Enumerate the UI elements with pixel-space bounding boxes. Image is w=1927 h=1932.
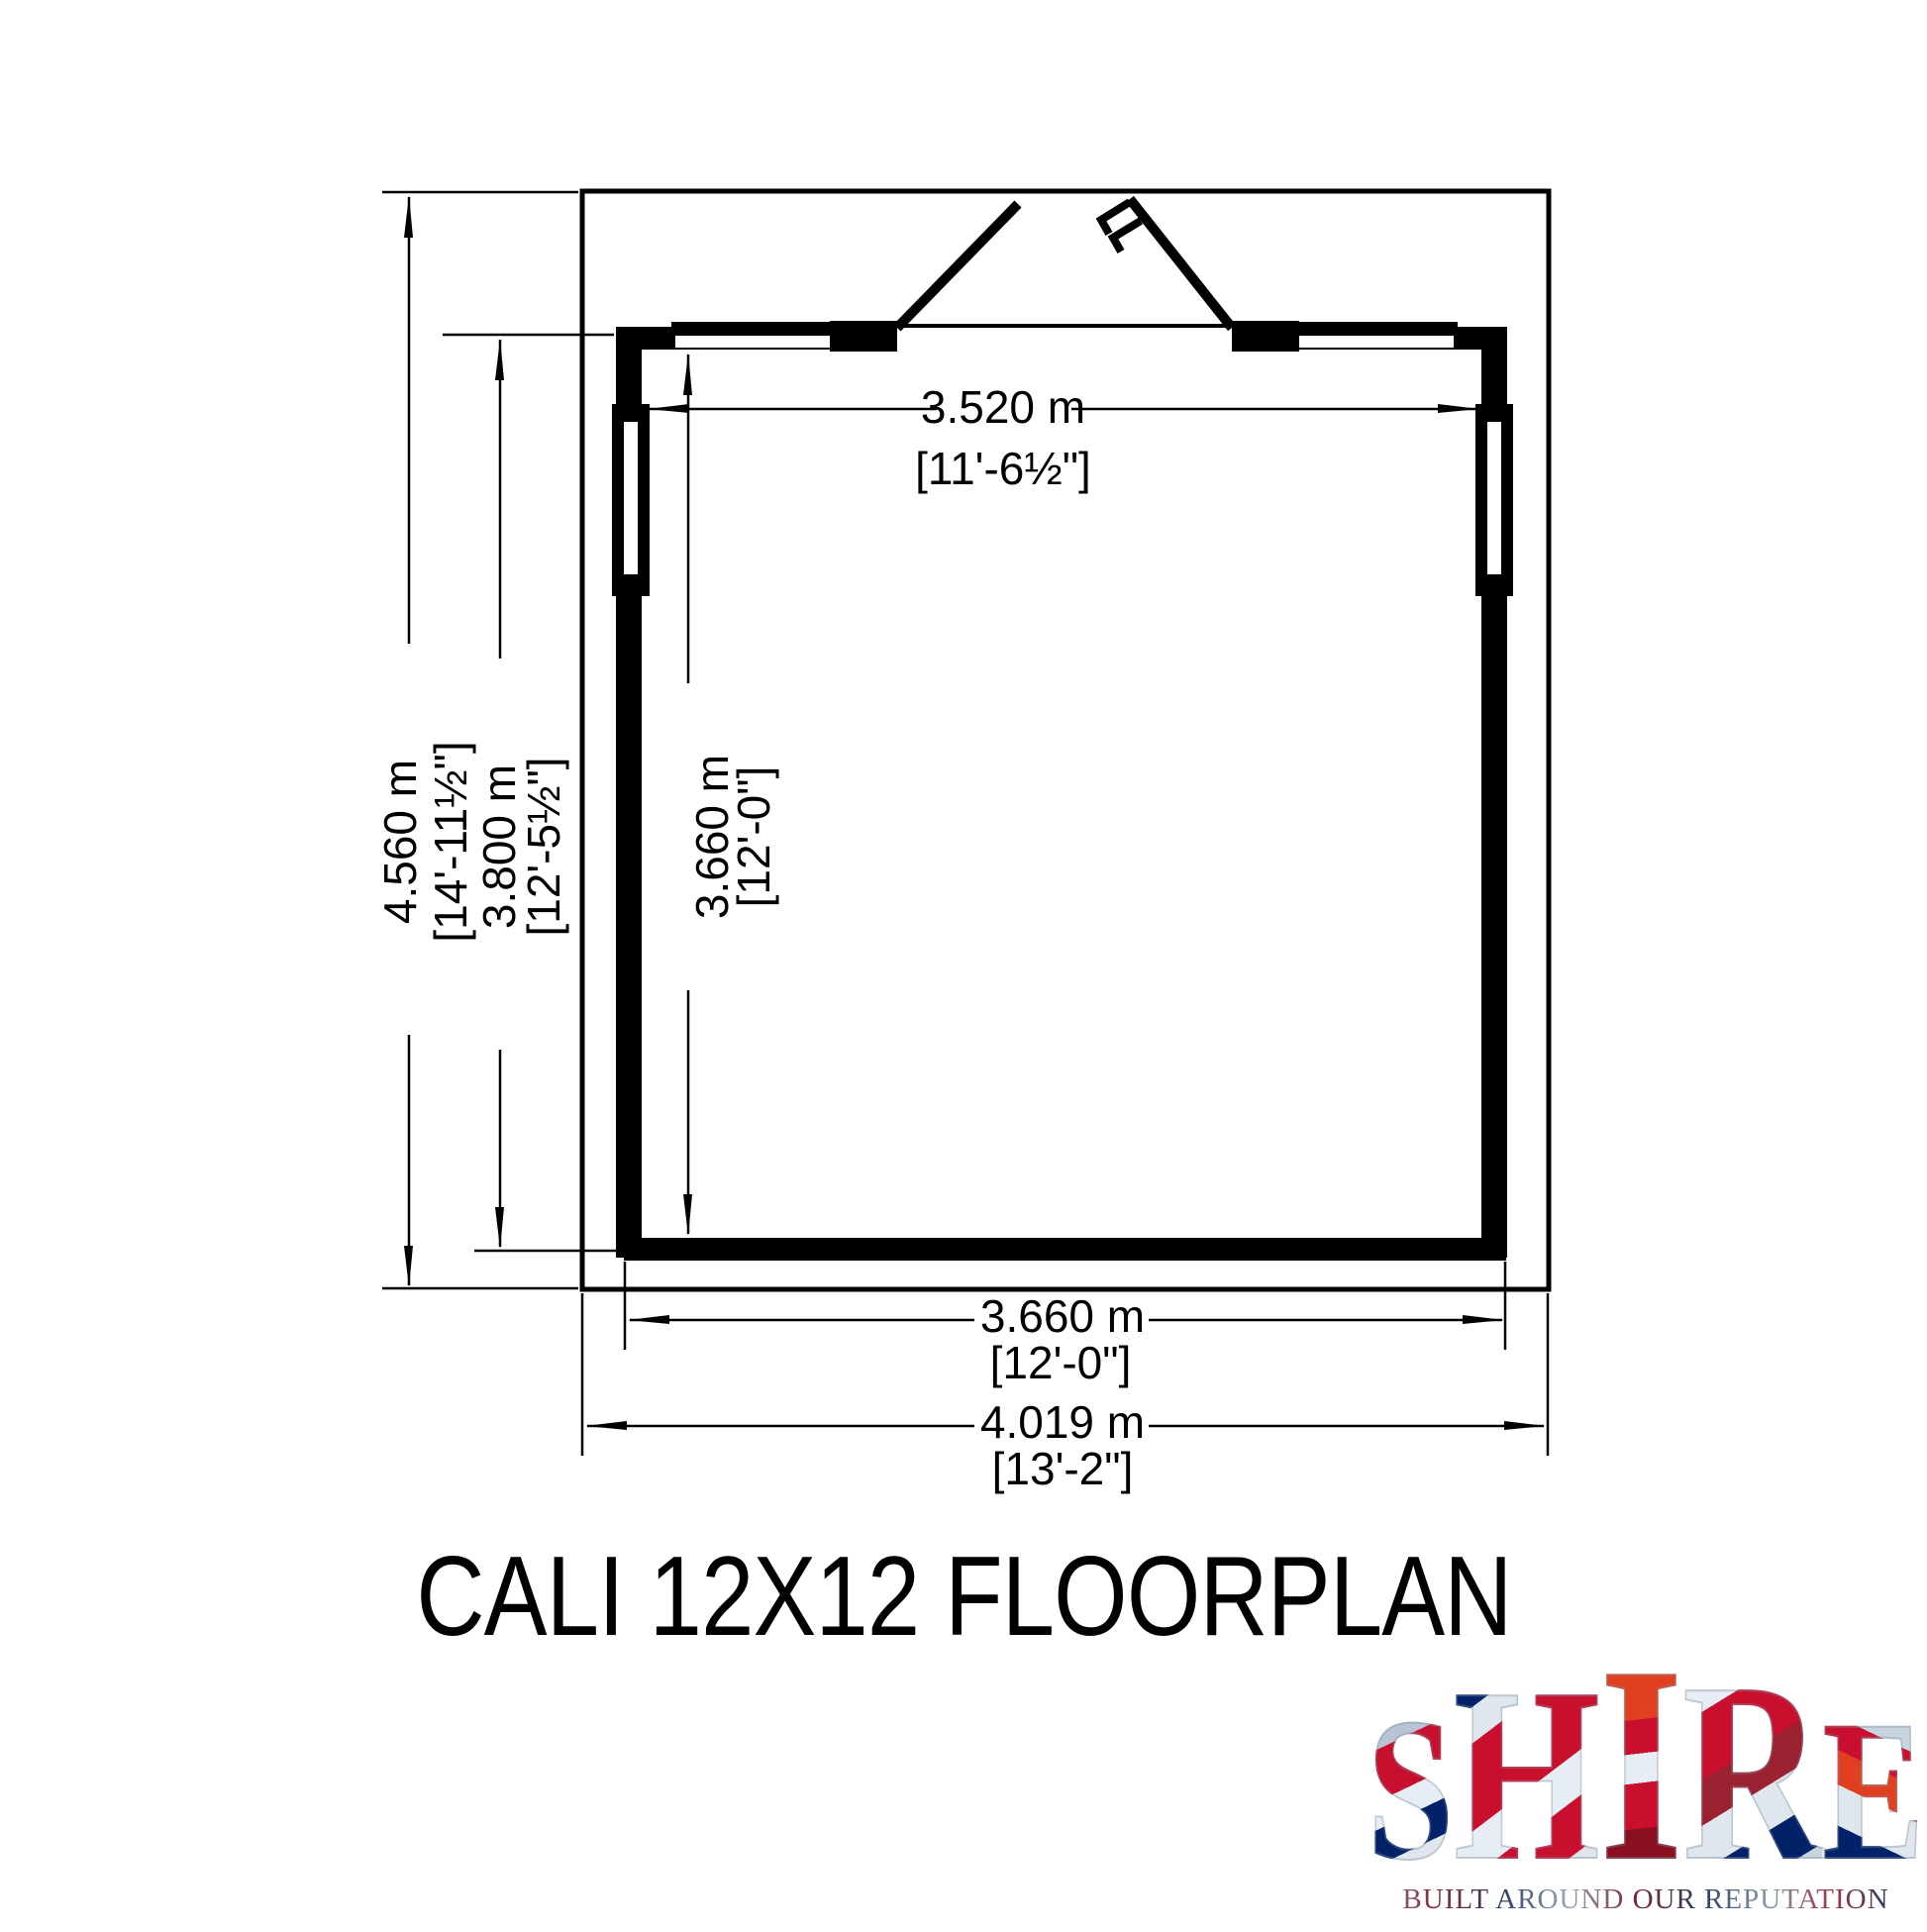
dim-label: [12'-0"]: [990, 1337, 1132, 1388]
logo-letter: S: [1368, 1710, 1454, 1870]
left-side-window-glass: [624, 422, 638, 574]
door-jamb-right: [1232, 321, 1299, 352]
arrow-left-icon: [628, 1315, 669, 1324]
dim-label: 4.019 m: [980, 1396, 1145, 1448]
arrow-down-icon: [683, 1194, 692, 1236]
arrow-right-icon: [1463, 1315, 1504, 1324]
arrow-up-icon: [404, 195, 413, 238]
dim-label: [13'-2"]: [992, 1443, 1134, 1494]
front-right-window-frame: [1295, 322, 1458, 332]
roof-overhang-outline: [582, 191, 1549, 1289]
logo-letter: H: [1454, 1678, 1600, 1872]
dim-label: [14'-11½"]: [425, 741, 476, 942]
arrow-up-icon: [495, 339, 504, 380]
door-leaf-left: [897, 204, 1018, 328]
page: { "title": "CALI 12X12 FLOORPLAN", "dime…: [0, 0, 1927, 1927]
page-title-text: CALI 12X12 FLOORPLAN: [416, 1541, 1511, 1654]
door-threshold-line: [897, 324, 1232, 328]
front-left-window-frame: [671, 322, 834, 332]
arrow-down-icon: [404, 1246, 413, 1287]
logo-letter: R: [1682, 1673, 1823, 1872]
door-leaf-right: [1130, 199, 1232, 328]
arrow-down-icon: [495, 1207, 504, 1249]
dim-label: [12'-0"]: [728, 766, 779, 908]
wall-back: [616, 1238, 1507, 1258]
door-handle-icon: [1113, 221, 1141, 252]
arrow-left-icon: [648, 404, 689, 413]
dim-label: 4.560 m: [374, 760, 426, 924]
logo-letter: E: [1823, 1713, 1924, 1870]
door-opening: [897, 328, 1232, 351]
floor-edge-line: [624, 1258, 1506, 1261]
dim-label: [11'-6½"]: [915, 443, 1091, 494]
front-right-window-glass: [1299, 336, 1454, 348]
arrow-right-icon: [1504, 1421, 1546, 1430]
side-windows: [612, 404, 1513, 596]
front-left-window-glass: [675, 336, 830, 348]
dim-label: 3.660 m: [980, 1290, 1145, 1342]
arrow-left-icon: [585, 1421, 627, 1430]
shire-logo-wordmark: S H I R E: [1435, 1656, 1857, 1874]
door-jamb-left: [830, 321, 897, 352]
arrow-up-icon: [683, 354, 692, 395]
logo-letter: I: [1600, 1656, 1682, 1874]
dim-label: 3.520 m: [921, 381, 1085, 433]
right-side-window-glass: [1487, 422, 1501, 574]
double-door: [830, 199, 1299, 352]
dim-label: [12'-5½"]: [518, 757, 569, 936]
dim-overall-depth: [382, 192, 578, 1288]
arrow-right-icon: [1438, 404, 1479, 413]
shire-logo: S H I R E BUILT AROUND OUR REPUTATION: [1369, 1656, 1923, 1916]
